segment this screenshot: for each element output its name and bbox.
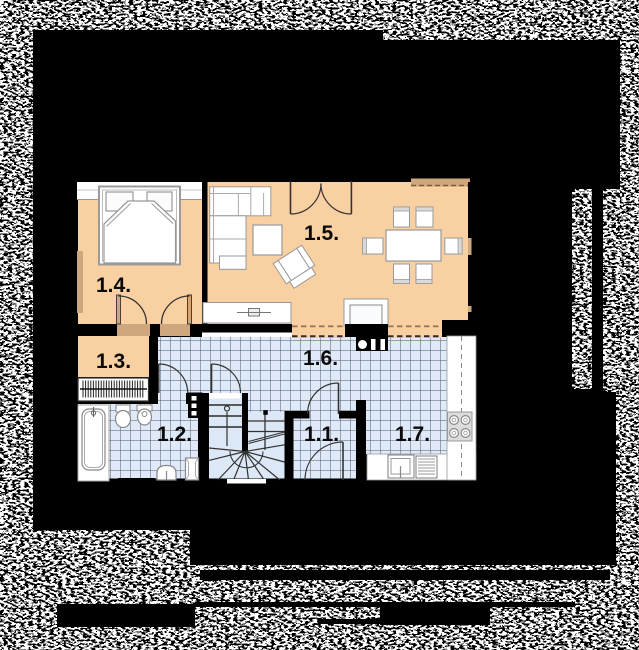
svg-text:1.2.: 1.2. xyxy=(157,423,192,446)
svg-text:1.5.: 1.5. xyxy=(304,222,339,245)
svg-text:1.3.: 1.3. xyxy=(96,350,131,373)
svg-text:1.6.: 1.6. xyxy=(303,347,338,370)
svg-text:1.1.: 1.1. xyxy=(304,423,339,446)
svg-text:1.7.: 1.7. xyxy=(395,423,430,446)
svg-text:1.4.: 1.4. xyxy=(96,274,131,297)
